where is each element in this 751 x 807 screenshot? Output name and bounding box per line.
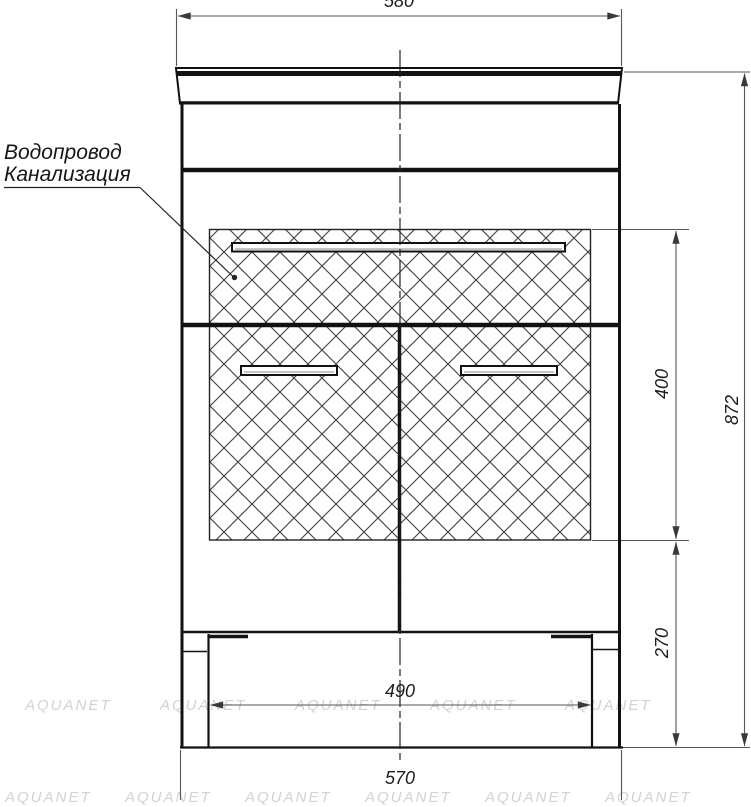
door-handle-left [241,366,337,375]
door-handle-right [461,366,557,375]
vanity-front-view-drawing [0,0,751,800]
drawer-handle [232,243,565,252]
technical-drawing-page: { "annotation": { "line1": "Водопровод",… [0,0,751,800]
leader-dot [232,275,237,280]
callout-leader [4,188,237,281]
